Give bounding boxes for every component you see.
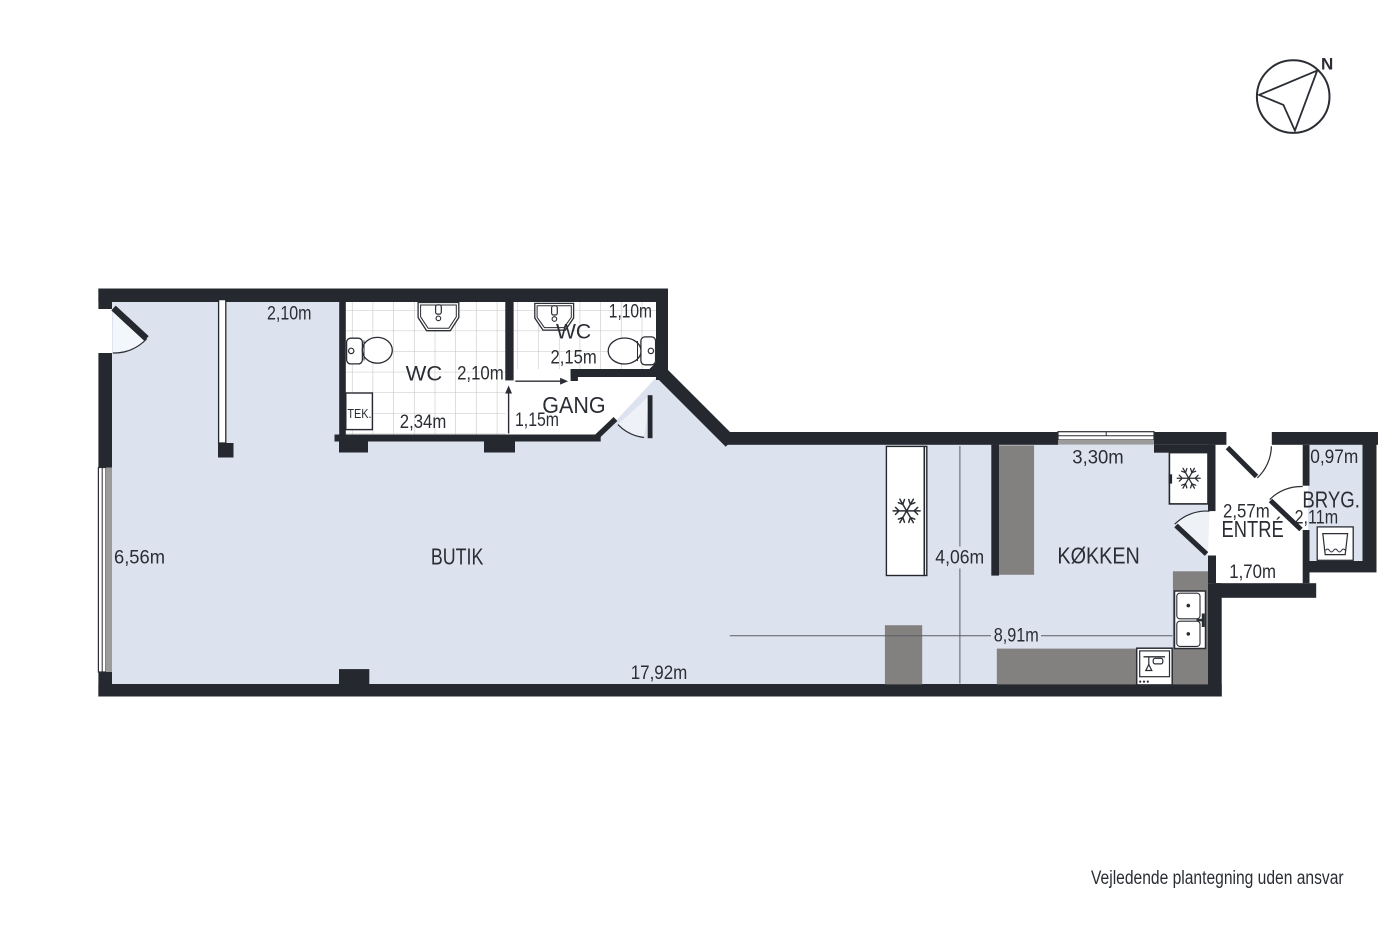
svg-text:Vejledende plantegning uden an: Vejledende plantegning uden ansvar	[1091, 868, 1344, 889]
svg-text:2,10m: 2,10m	[457, 364, 504, 385]
svg-text:N: N	[1321, 55, 1333, 74]
svg-text:6,56m: 6,56m	[114, 548, 165, 569]
svg-text:WC: WC	[406, 362, 443, 385]
svg-text:1,10m: 1,10m	[609, 302, 652, 323]
svg-text:2,10m: 2,10m	[267, 303, 311, 324]
svg-text:0,97m: 0,97m	[1310, 447, 1358, 468]
svg-text:1,15m: 1,15m	[515, 410, 559, 431]
svg-text:WC: WC	[556, 321, 591, 344]
svg-text:2,11m: 2,11m	[1295, 508, 1339, 529]
svg-text:4,06m: 4,06m	[935, 547, 984, 568]
svg-text:2,34m: 2,34m	[400, 412, 447, 433]
svg-text:17,92m: 17,92m	[631, 663, 688, 684]
svg-text:2,15m: 2,15m	[551, 348, 597, 369]
svg-text:8,91m: 8,91m	[994, 626, 1039, 647]
svg-text:TEK.: TEK.	[347, 406, 371, 421]
svg-text:ENTRÉ: ENTRÉ	[1222, 516, 1284, 542]
svg-text:1,70m: 1,70m	[1229, 562, 1276, 583]
svg-text:3,30m: 3,30m	[1072, 448, 1123, 469]
svg-text:KØKKEN: KØKKEN	[1057, 543, 1139, 569]
svg-text:BUTIK: BUTIK	[431, 544, 484, 570]
